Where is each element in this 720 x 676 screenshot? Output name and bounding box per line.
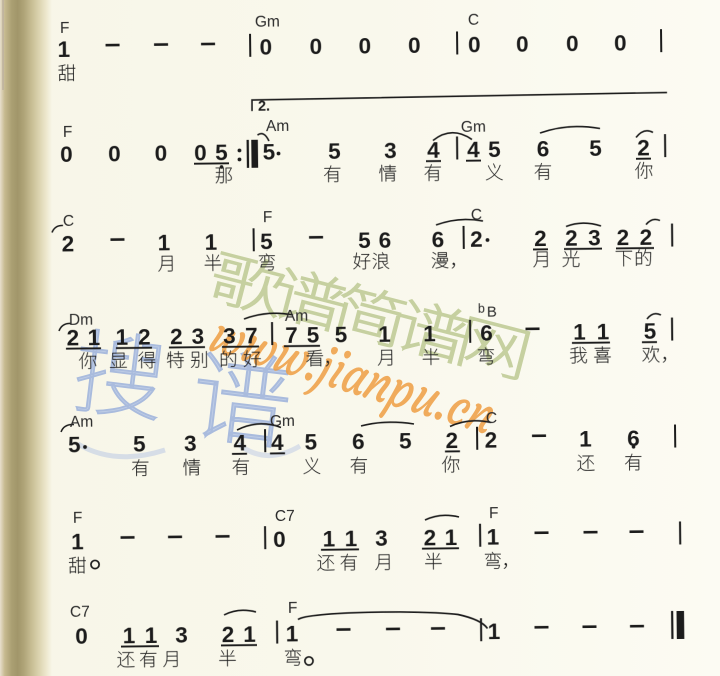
svg-text:F: F	[60, 20, 70, 37]
svg-text:5: 5	[589, 136, 602, 161]
svg-text:5: 5	[304, 430, 317, 455]
svg-text:2: 2	[616, 225, 629, 250]
svg-text:0: 0	[273, 527, 286, 552]
svg-text:2: 2	[565, 226, 578, 251]
svg-text:7: 7	[285, 323, 298, 348]
svg-text:5: 5	[335, 322, 348, 347]
svg-text:F: F	[288, 600, 298, 617]
svg-text:C: C	[471, 207, 482, 224]
svg-text:6: 6	[537, 136, 550, 161]
svg-text:F: F	[263, 209, 273, 226]
svg-text:1: 1	[115, 325, 128, 350]
svg-text:1: 1	[123, 623, 136, 648]
svg-text:C: C	[468, 12, 479, 29]
svg-text:4: 4	[467, 137, 480, 162]
svg-text:B: B	[487, 303, 497, 320]
svg-text:1: 1	[205, 230, 218, 255]
svg-text:5: 5	[358, 228, 371, 253]
svg-text:5: 5	[328, 139, 341, 164]
svg-text:Gm: Gm	[461, 119, 486, 136]
svg-text:6: 6	[480, 321, 493, 346]
svg-text:5: 5	[215, 140, 228, 165]
svg-text:3: 3	[175, 623, 188, 648]
svg-text:C7: C7	[275, 508, 295, 525]
svg-text:2: 2	[445, 428, 458, 453]
svg-text:3: 3	[384, 138, 397, 163]
svg-text:1: 1	[597, 319, 610, 344]
svg-text:1: 1	[243, 622, 256, 647]
svg-text:1: 1	[58, 37, 71, 62]
svg-text:2: 2	[222, 622, 235, 647]
svg-text:C: C	[486, 410, 497, 427]
svg-text:6: 6	[352, 429, 365, 454]
svg-text:1: 1	[71, 529, 84, 554]
svg-text:1: 1	[158, 230, 171, 255]
svg-text:1: 1	[87, 325, 100, 350]
svg-text:0: 0	[566, 31, 579, 56]
svg-text:4: 4	[233, 430, 246, 455]
svg-text:0: 0	[60, 142, 73, 167]
svg-text:0: 0	[516, 32, 529, 57]
svg-text:4: 4	[271, 430, 284, 455]
svg-text:1: 1	[579, 426, 592, 451]
svg-text:2: 2	[534, 226, 547, 251]
svg-text:5: 5	[399, 429, 412, 454]
svg-text:5: 5	[488, 137, 501, 162]
svg-text:7: 7	[245, 323, 258, 348]
svg-text:0: 0	[408, 33, 421, 58]
svg-text:2: 2	[637, 135, 650, 160]
svg-text:Gm: Gm	[270, 413, 295, 430]
svg-text:0: 0	[259, 35, 272, 60]
svg-text:1: 1	[573, 320, 586, 345]
svg-text:Am: Am	[266, 118, 289, 135]
svg-text:5: 5	[260, 229, 273, 254]
svg-text:3: 3	[184, 431, 197, 456]
svg-text:1: 1	[145, 623, 158, 648]
svg-text:0: 0	[194, 140, 207, 165]
svg-text:0: 0	[154, 141, 167, 166]
svg-text:5: 5	[262, 140, 275, 165]
svg-text:2: 2	[639, 225, 652, 250]
svg-text:4: 4	[427, 138, 440, 163]
svg-text:0: 0	[75, 624, 88, 649]
svg-text:5: 5	[68, 432, 81, 457]
svg-text:0: 0	[309, 34, 322, 59]
svg-text:F: F	[63, 124, 73, 141]
svg-text:1: 1	[423, 321, 436, 346]
svg-text:1: 1	[344, 526, 357, 551]
svg-text:3: 3	[588, 225, 601, 250]
svg-text:Am: Am	[70, 414, 93, 431]
svg-text:5: 5	[307, 323, 320, 348]
svg-text:C7: C7	[70, 604, 90, 621]
svg-text:0: 0	[468, 32, 481, 57]
svg-text:2: 2	[62, 231, 75, 256]
svg-text:F: F	[489, 505, 499, 522]
svg-text:b: b	[478, 302, 485, 316]
svg-text:1: 1	[487, 525, 500, 550]
svg-text:1: 1	[322, 526, 335, 551]
svg-text:Gm: Gm	[255, 14, 280, 31]
svg-text:6: 6	[431, 227, 444, 252]
svg-text:3: 3	[375, 526, 388, 551]
svg-text:2: 2	[470, 227, 483, 252]
svg-text:1: 1	[378, 322, 391, 347]
svg-text:2: 2	[423, 525, 436, 550]
svg-text:0: 0	[614, 31, 627, 56]
svg-text:1: 1	[286, 621, 299, 646]
svg-text:1: 1	[444, 525, 457, 550]
svg-text:C: C	[63, 213, 74, 230]
svg-text:F: F	[73, 510, 83, 527]
svg-text:2: 2	[66, 325, 79, 350]
svg-text:2: 2	[138, 324, 151, 349]
svg-text:5: 5	[644, 319, 657, 344]
svg-text:2.: 2.	[258, 98, 270, 114]
svg-text:2: 2	[170, 324, 183, 349]
svg-text:3: 3	[223, 324, 236, 349]
svg-text:0: 0	[358, 33, 371, 58]
svg-text:0: 0	[108, 141, 121, 166]
svg-text:2: 2	[485, 428, 498, 453]
svg-text:1: 1	[488, 619, 501, 644]
svg-text:3: 3	[191, 324, 204, 349]
svg-text:6: 6	[378, 228, 391, 253]
svg-text:5: 5	[133, 432, 146, 457]
